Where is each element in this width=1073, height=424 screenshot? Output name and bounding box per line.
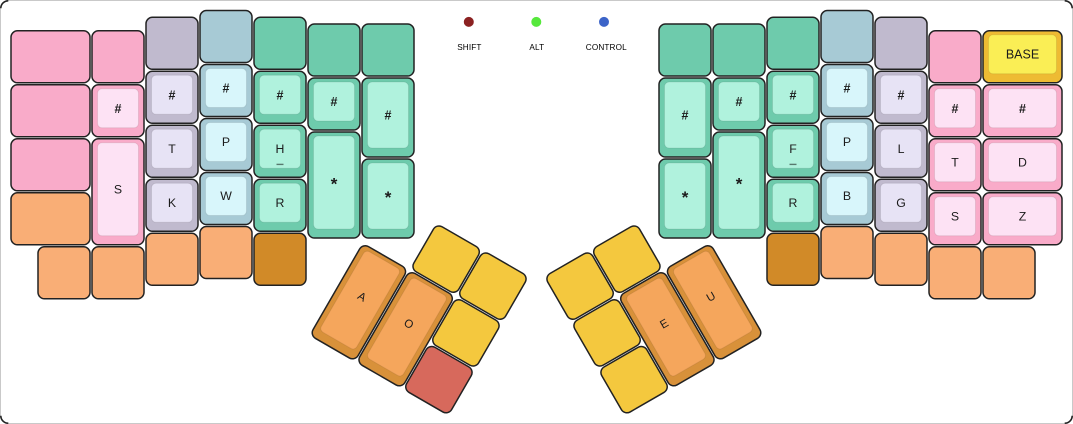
svg-text:#: #: [277, 88, 284, 102]
svg-text:B: B: [843, 189, 851, 203]
svg-text:S: S: [951, 209, 959, 223]
svg-text:*: *: [736, 175, 743, 194]
svg-text:#: #: [115, 102, 122, 116]
svg-text:*: *: [682, 188, 689, 207]
svg-text:K: K: [168, 196, 177, 210]
svg-text:T: T: [951, 155, 959, 169]
svg-text:P: P: [843, 135, 851, 149]
svg-text:*: *: [331, 175, 338, 194]
svg-text:#: #: [223, 82, 230, 96]
svg-text:R: R: [789, 196, 798, 210]
svg-text:#: #: [844, 82, 851, 96]
svg-text:ALT: ALT: [529, 43, 544, 52]
svg-text:SHIFT: SHIFT: [457, 43, 481, 52]
svg-text:Z: Z: [1019, 209, 1027, 223]
svg-text:#: #: [682, 109, 689, 123]
svg-text:#: #: [952, 102, 959, 116]
svg-text:D: D: [1018, 155, 1027, 169]
svg-text:#: #: [790, 88, 797, 102]
svg-text:S: S: [114, 182, 122, 196]
svg-text:BASE: BASE: [1006, 47, 1039, 61]
svg-text:#: #: [1019, 102, 1026, 116]
svg-text:P: P: [222, 135, 230, 149]
svg-text:CONTROL: CONTROL: [586, 43, 627, 52]
svg-text:F: F: [789, 142, 797, 156]
svg-text:#: #: [898, 88, 905, 102]
svg-text:R: R: [276, 196, 285, 210]
svg-text:W: W: [220, 189, 232, 203]
svg-text:T: T: [168, 142, 176, 156]
svg-text:#: #: [169, 88, 176, 102]
svg-text:G: G: [896, 196, 906, 210]
svg-text:L: L: [898, 142, 905, 156]
svg-text:#: #: [385, 109, 392, 123]
svg-text:*: *: [385, 188, 392, 207]
svg-text:#: #: [736, 95, 743, 109]
svg-text:H: H: [276, 142, 285, 156]
svg-text:#: #: [331, 95, 338, 109]
